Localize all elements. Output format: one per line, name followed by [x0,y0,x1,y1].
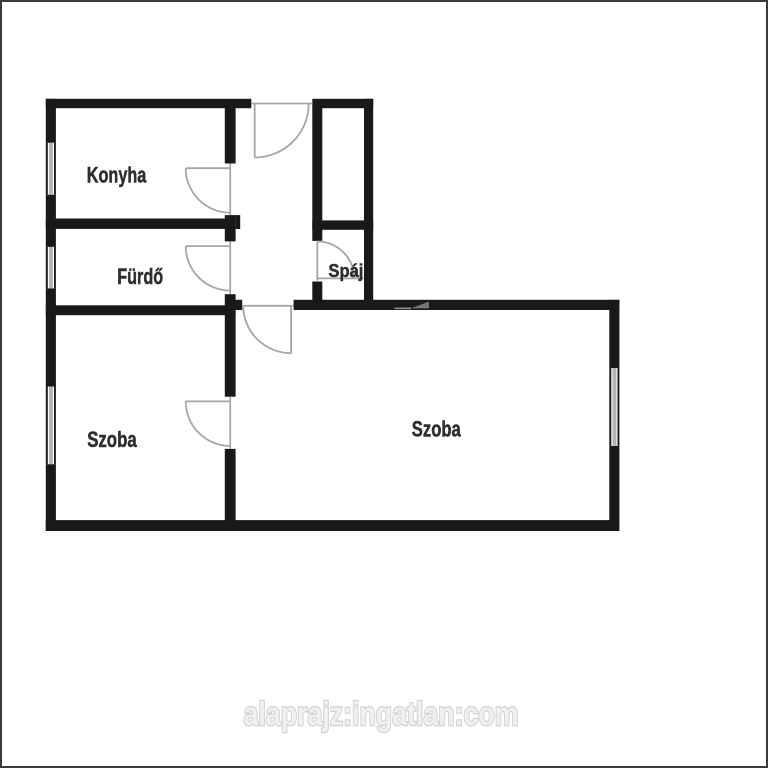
svg-text:Konyha: Konyha [87,162,147,187]
svg-text:Fürdő: Fürdő [117,264,163,289]
svg-text:alaprajz:ingatlan:com: alaprajz:ingatlan:com [244,695,519,732]
svg-text:Szoba: Szoba [87,427,137,452]
svg-text:Spáj: Spáj [328,260,363,281]
svg-text:Szoba: Szoba [412,416,462,441]
